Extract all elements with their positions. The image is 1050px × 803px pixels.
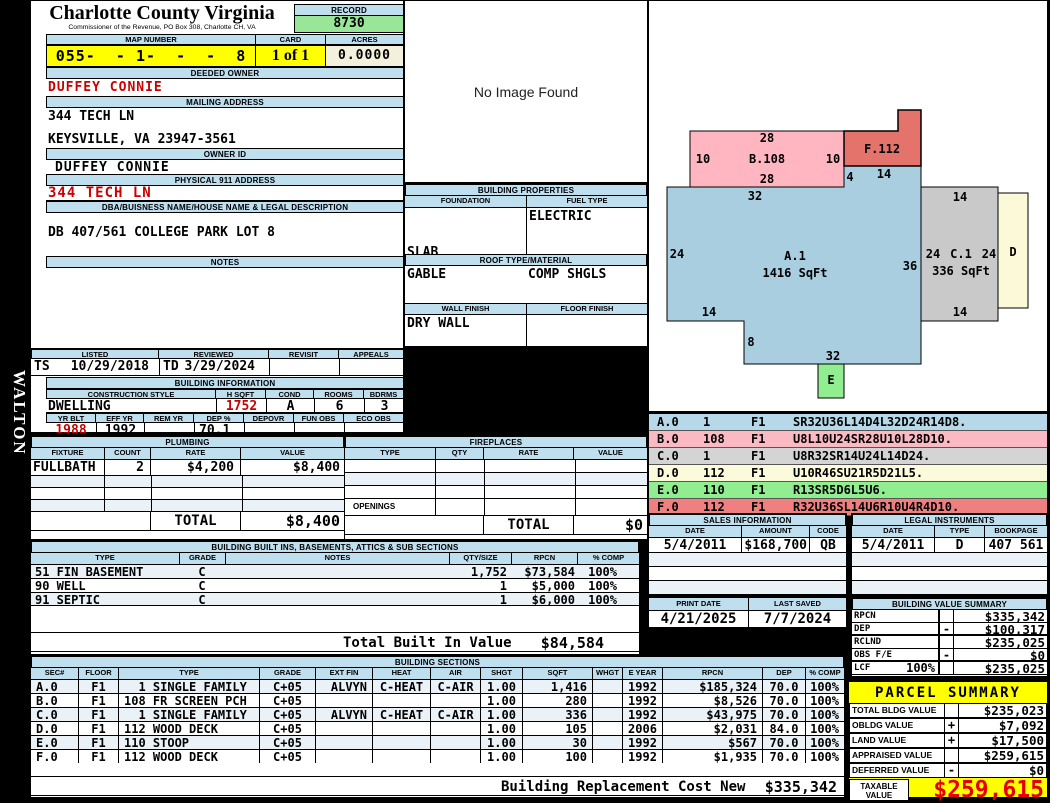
rooms-label: ROOMS <box>314 389 364 399</box>
sketch-b-top-dim: 28 <box>760 131 774 145</box>
cell-shgt: 1.00 <box>480 722 522 735</box>
foundation-label: FOUNDATION <box>405 196 526 207</box>
plumbing-rate: $4,200 <box>150 460 240 475</box>
vector-sec: C.0 <box>649 448 703 464</box>
county-subtitle: Commissioner of the Revenue, PO Box 308,… <box>31 24 293 31</box>
cell-dep: 70.0 <box>762 708 805 721</box>
sqft-col-label: SQFT <box>522 668 592 679</box>
building-information-label: BUILDING INFORMATION <box>46 377 404 389</box>
vector-floor: F1 <box>751 465 793 481</box>
sales-panel: SALES INFORMATION DATE AMOUNT CODE 5/4/2… <box>648 513 847 593</box>
owner-id-label: OWNER ID <box>46 148 404 160</box>
vector-descriptors-panel: A.01F1SR32U36L14D4L32D24R14D8.B.0108F1U8… <box>648 413 1048 513</box>
yrblt-value: 1988 <box>46 423 96 433</box>
hsqft-value: 1752 <box>216 399 266 412</box>
funobs-label: FUN OBS <box>294 413 344 423</box>
vector-row: B.0108F1U8L10U24SR28U10L28D10. <box>649 431 1047 448</box>
cell-dep: 70.0 <box>762 680 805 693</box>
cell-ext <box>315 750 372 763</box>
cell-rpcn: $2,031 <box>662 722 762 735</box>
building-properties-label: BUILDING PROPERTIES <box>405 184 647 196</box>
cell-eyear: 1992 <box>622 750 662 763</box>
acres-value: 0.0000 <box>326 45 404 67</box>
bi-notes-label: NOTES <box>225 553 449 564</box>
parcel-row-label: DEFERRED VALUE <box>849 763 945 778</box>
cell-heat <box>372 736 430 749</box>
section-f-shape <box>844 110 921 166</box>
floor-finish-label: FLOOR FINISH <box>526 303 647 314</box>
fireplace-openings-label: OPENINGS <box>345 499 435 515</box>
cell-floor: F1 <box>78 694 118 707</box>
parcel-summary-title: PARCEL SUMMARY <box>849 682 1047 702</box>
value-summary-row-label: RCLND <box>852 636 881 648</box>
bdrms-label: BDRMS <box>364 389 404 399</box>
section-a-shape <box>667 166 921 364</box>
rate-label: RATE <box>150 448 240 459</box>
fireplaces-total-label: TOTAL <box>483 516 573 534</box>
cell-shgt: 1.00 <box>480 680 522 693</box>
parcel-summary-panel: PARCEL SUMMARY TOTAL BLDG VALUE$235,023O… <box>848 681 1048 798</box>
cell-rpcn: $8,526 <box>662 694 762 707</box>
ecoobs-label: ECO OBS <box>344 413 404 423</box>
plumbing-total-label: TOTAL <box>150 512 240 530</box>
vector-code: 1 <box>703 448 751 464</box>
vector-row: D.0112F1U10R46SU21R5D21L5. <box>649 465 1047 482</box>
cell-shgt: 1.00 <box>480 750 522 763</box>
value-summary-row-op <box>940 610 953 622</box>
vector-row: E.0110F1R13SR5D6L5U6. <box>649 482 1047 499</box>
cell-type: 108 FR SCREEN PCH <box>118 694 259 707</box>
cell-floor: F1 <box>78 736 118 749</box>
cell-heat: C-HEAT <box>372 680 430 693</box>
sale-row: 5/4/2011 $168,700 QB <box>649 537 846 553</box>
building-properties-panel: BUILDING PROPERTIES FOUNDATION FUEL TYPE… <box>404 183 648 347</box>
cell-shgt: 1.00 <box>480 694 522 707</box>
parcel-row-op: + <box>945 718 959 733</box>
parcel-row-op <box>945 748 959 763</box>
fixture-label: FIXTURE <box>31 448 104 459</box>
sketch-drawing <box>649 1 1047 411</box>
vector-sec: E.0 <box>649 482 703 498</box>
county-title: Charlotte County Virginia <box>31 2 293 25</box>
cell-sqft: 336 <box>522 708 592 721</box>
cell-dep: 70.0 <box>762 694 805 707</box>
cell-grade: C+05 <box>259 708 315 721</box>
fireplace-value-label: VALUE <box>573 448 647 459</box>
bi-comp-label: % COMP <box>577 553 639 564</box>
sketch-a-top14-dim: 14 <box>877 167 891 181</box>
value-summary-row-op: - <box>940 649 953 660</box>
sketch-b-left-dim: 10 <box>696 152 710 166</box>
notes-value <box>46 268 404 344</box>
cell-comp: 100% <box>805 722 844 735</box>
depovr-label: DEPOVR <box>244 413 294 423</box>
count-label: COUNT <box>104 448 150 459</box>
sketch-a-bl14-dim: 14 <box>702 305 716 319</box>
bi-qty-label: QTY/SIZE <box>449 553 511 564</box>
parcel-row-label: LAND VALUE <box>849 733 945 748</box>
fireplace-type-label: TYPE <box>345 448 435 459</box>
cell-heat: C-HEAT <box>372 708 430 721</box>
value-summary-row-value: $335,342 <box>953 610 1047 622</box>
sale-code-label: CODE <box>809 526 846 537</box>
cell-air: C-AIR <box>430 708 480 721</box>
dep-pct-label: DEP % <box>194 413 244 423</box>
sketch-b-label: B.108 <box>749 152 785 166</box>
building-section-row: F.0F1112 WOOD DECKC+051.001001992$1,9357… <box>31 749 844 763</box>
sketch-b-bottom-dim: 28 <box>760 172 774 186</box>
vector-path: U8L10U24SR28U10L28D10. <box>793 431 1047 447</box>
sketch-a-sqft: 1416 SqFt <box>762 266 827 280</box>
building-section-row: E.0F1110 STOOPC+051.00301992$56770.0100% <box>31 735 844 749</box>
cell-heat <box>372 722 430 735</box>
built-ins-total-value: $84,584 <box>541 634 604 652</box>
sale-amount-label: AMOUNT <box>741 526 809 537</box>
value-summary-row-pct: 100% <box>906 662 935 674</box>
print-date-label: PRINT DATE <box>649 598 748 610</box>
sketch-c-label: C.1 <box>950 247 972 261</box>
photo-panel: No Image Found <box>404 0 648 183</box>
replacement-cost-value: $335,342 <box>765 778 837 796</box>
cell-grade: C+05 <box>259 694 315 707</box>
cell-type: 1 SINGLE FAMILY <box>118 680 259 693</box>
sketch-c-left-dim: 24 <box>926 247 940 261</box>
dep-col-label: DEP <box>762 668 805 679</box>
deeded-owner-label: DEEDED OWNER <box>46 67 404 79</box>
building-section-row: B.0F1108 FR SCREEN PCHC+051.002801992$8,… <box>31 693 844 707</box>
cell-ext <box>315 694 372 707</box>
whgt-col-label: WHGT <box>592 668 622 679</box>
cell-ext <box>315 736 372 749</box>
construction-style-label: CONSTRUCTION STYLE <box>46 389 216 399</box>
cell-eyear: 2006 <box>622 722 662 735</box>
sketch-c-right-dim: 24 <box>982 247 996 261</box>
cell-sqft: 100 <box>522 750 592 763</box>
eyear-col-label: E YEAR <box>622 668 662 679</box>
parcel-row-label: OBLDG VALUE <box>849 718 945 733</box>
cond-label: COND <box>266 389 314 399</box>
revisit-value <box>269 359 339 375</box>
remyr-label: REM YR <box>144 413 194 423</box>
plumbing-value: $8,400 <box>240 460 344 475</box>
cell-ext <box>315 722 372 735</box>
building-sections-label: BUILDING SECTIONS <box>31 656 844 668</box>
listed-by: TS <box>34 359 50 375</box>
deeded-owner-value: DUFFEY CONNIE <box>48 80 404 96</box>
vector-row: C.01F1U8R32SR14U24L14D24. <box>649 448 1047 465</box>
parcel-summary-row: DEFERRED VALUE-$0 <box>849 763 1047 778</box>
funobs-value <box>294 423 344 433</box>
cell-sqft: 105 <box>522 722 592 735</box>
parcel-row-op <box>945 703 959 718</box>
legal-description-label: DBA/BUISNESS NAME/HOUSE NAME & LEGAL DES… <box>46 201 404 213</box>
sketch-a-right36-dim: 36 <box>903 259 917 273</box>
cell-air <box>430 736 480 749</box>
sketch-c-sqft: 336 SqFt <box>932 264 990 278</box>
vector-code: 112 <box>703 465 751 481</box>
sketch-a-top32-dim: 32 <box>748 189 762 203</box>
cell-rpcn: $43,975 <box>662 708 762 721</box>
building-section-row: C.0F1 1 SINGLE FAMILYC+05ALVYNC-HEATC-AI… <box>31 707 844 721</box>
print-info-panel: PRINT DATE LAST SAVED 4/21/2025 7/7/2024 <box>648 597 847 628</box>
cell-sec: C.0 <box>31 708 78 721</box>
value-summary-row-value: $100,317 <box>953 623 1047 634</box>
cond-value: A <box>266 399 314 412</box>
owner-panel: Charlotte County Virginia Commissioner o… <box>30 0 404 433</box>
cell-air <box>430 694 480 707</box>
sketch-b-right-dim: 10 <box>826 152 840 166</box>
cell-shgt: 1.00 <box>480 736 522 749</box>
vector-floor: F1 <box>751 431 793 447</box>
floor-col-label: FLOOR <box>78 668 118 679</box>
type-col-label: TYPE <box>118 668 259 679</box>
cell-ext: ALVYN <box>315 680 372 693</box>
cell-heat <box>372 694 430 707</box>
sketch-c-bottom-dim: 14 <box>953 305 967 319</box>
fireplaces-label: FIREPLACES <box>345 436 647 448</box>
acres-label: ACRES <box>326 34 404 45</box>
bi-type-label: TYPE <box>31 553 179 564</box>
cell-eyear: 1992 <box>622 708 662 721</box>
listed-label: LISTED <box>31 349 159 359</box>
fireplace-rate-label: RATE <box>483 448 573 459</box>
vector-path: R13SR5D6L5U6. <box>793 482 1047 498</box>
cell-whgt <box>592 736 622 749</box>
sidebar-vertical-label: WALTON <box>3 343 29 483</box>
appeals-value <box>339 359 404 375</box>
card-value: 1 of 1 <box>256 45 326 67</box>
cell-sec: D.0 <box>31 722 78 735</box>
parcel-summary-row: APPRAISED VALUE$259,615 <box>849 748 1047 763</box>
revisit-label: REVISIT <box>269 349 339 359</box>
building-section-row: D.0F1112 WOOD DECKC+051.001052006$2,0318… <box>31 721 844 735</box>
value-summary-row-label: LCF <box>852 662 870 674</box>
last-saved-label: LAST SAVED <box>748 598 846 610</box>
property-record-card: { "sidebar": { "vertical_text": "WALTON"… <box>0 0 1050 800</box>
parcel-row-value: $17,500 <box>959 733 1047 748</box>
reviewed-by: TD <box>163 359 179 375</box>
replacement-cost-label: Building Replacement Cost New <box>501 779 745 796</box>
legal-date-label: DATE <box>852 526 934 537</box>
sketch-a-label: A.1 <box>784 249 806 263</box>
appeals-label: APPEALS <box>339 349 404 359</box>
roof-type-label: ROOF TYPE/MATERIAL <box>405 254 647 266</box>
cell-sec: E.0 <box>31 736 78 749</box>
print-date-value: 4/21/2025 <box>649 611 748 627</box>
notes-label: NOTES <box>46 256 404 268</box>
parcel-row-op: - <box>945 763 959 778</box>
cell-air <box>430 750 480 763</box>
wall-finish-label: WALL FINISH <box>405 303 526 314</box>
value-summary-row-op <box>940 636 953 648</box>
cell-grade: C+05 <box>259 722 315 735</box>
mailing-address-line2: KEYSVILLE, VA 23947-3561 <box>48 132 404 148</box>
cell-eyear: 1992 <box>622 736 662 749</box>
cell-dep: 84.0 <box>762 722 805 735</box>
cell-type: 112 WOOD DECK <box>118 750 259 763</box>
effyr-value: 1992 <box>96 423 144 433</box>
cell-comp: 100% <box>805 680 844 693</box>
effyr-label: EFF YR <box>96 413 144 423</box>
rooms-value: 6 <box>314 399 364 412</box>
foundation-value: SLAB BRICK & BLOCK <box>405 208 526 254</box>
sketch-f-label: F.112 <box>864 142 900 156</box>
ecoobs-value <box>344 423 404 433</box>
vector-sec: A.0 <box>649 414 703 430</box>
record-value: 8730 <box>294 15 404 33</box>
mailing-address-line1: 344 TECH LN <box>48 109 404 125</box>
vector-floor: F1 <box>751 414 793 430</box>
sketch-a-bottom32-dim: 32 <box>826 349 840 363</box>
cell-type: 112 WOOD DECK <box>118 722 259 735</box>
value-summary-row: LCF100%$235,025 <box>852 662 1047 675</box>
cell-whgt <box>592 750 622 763</box>
reviewed-date: 3/29/2024 <box>185 359 255 375</box>
vector-path: U8R32SR14U24L14D24. <box>793 448 1047 464</box>
cell-rpcn: $185,324 <box>662 680 762 693</box>
cell-whgt <box>592 708 622 721</box>
taxable-value-label: TAXABLEVALUE <box>849 779 909 801</box>
cell-whgt <box>592 680 622 693</box>
vector-path: SR32U36L14D4L32D24R14D8. <box>793 414 1047 430</box>
physical-address-value: 344 TECH LN <box>46 185 404 201</box>
value-summary-row-op <box>940 662 953 674</box>
card-label: CARD <box>256 34 326 45</box>
cell-sqft: 280 <box>522 694 592 707</box>
cell-type: 110 STOOP <box>118 736 259 749</box>
value-summary-row-label: RPCN <box>852 610 876 622</box>
map-number-label: MAP NUMBER <box>46 34 256 45</box>
sketch-d-label: D <box>1009 245 1016 259</box>
cell-comp: 100% <box>805 708 844 721</box>
cell-whgt <box>592 694 622 707</box>
fireplace-qty-label: QTY <box>435 448 483 459</box>
vector-sec: D.0 <box>649 465 703 481</box>
plumbing-total-value: $8,400 <box>240 512 344 530</box>
cell-grade: C+05 <box>259 680 315 693</box>
cell-sec: B.0 <box>31 694 78 707</box>
vector-row: A.01F1SR32U36L14D4L32D24R14D8. <box>649 414 1047 431</box>
vector-code: 108 <box>703 431 751 447</box>
built-ins-row: 51 FIN BASEMENT C 1,752 $73,584 100% <box>31 564 639 578</box>
fuel-type-value: ELECTRIC <box>526 208 647 254</box>
construction-style-value: DWELLING <box>46 399 216 412</box>
listed-date: 10/29/2018 <box>71 359 149 375</box>
legal-description-value: DB 407/561 COLLEGE PARK LOT 8 <box>48 225 404 241</box>
sales-label: SALES INFORMATION <box>649 514 846 526</box>
parcel-row-value: $7,092 <box>959 718 1047 733</box>
vector-code: 110 <box>703 482 751 498</box>
cell-comp: 100% <box>805 736 844 749</box>
cell-heat <box>372 750 430 763</box>
cell-eyear: 1992 <box>622 694 662 707</box>
cell-rpcn: $1,935 <box>662 750 762 763</box>
cell-whgt <box>592 722 622 735</box>
parcel-summary-row: OBLDG VALUE+$7,092 <box>849 718 1047 733</box>
bdrms-value: 3 <box>364 399 404 412</box>
plumbing-panel: PLUMBING FIXTURE COUNT RATE VALUE FULLBA… <box>30 435 345 540</box>
sketch-a-seg4-dim: 4 <box>846 170 853 184</box>
mailing-address-label: MAILING ADDRESS <box>46 96 404 108</box>
cell-sqft: 30 <box>522 736 592 749</box>
built-ins-label: BUILDING BUILT INS, BASEMENTS, ATTICS & … <box>31 541 639 553</box>
building-sections-panel: BUILDING SECTIONS SEC# FLOOR TYPE GRADE … <box>30 655 845 798</box>
parcel-row-value: $259,615 <box>959 748 1047 763</box>
sketch-c-top-dim: 14 <box>953 190 967 204</box>
parcel-row-op: + <box>945 733 959 748</box>
floor-finish-value: CARPET VINYL <box>526 315 647 358</box>
reviewed-value: TD3/29/2024 <box>159 359 269 375</box>
comp-col-label: % COMP <box>805 668 844 679</box>
cell-air: C-AIR <box>430 680 480 693</box>
yrblt-label: YR BLT <box>46 413 96 423</box>
legal-type-label: TYPE <box>934 526 984 537</box>
plumbing-fixture: FULLBATH <box>31 460 104 475</box>
cell-air <box>430 722 480 735</box>
vector-path: U10R46SU21R5D21L5. <box>793 465 1047 481</box>
vector-code: 1 <box>703 414 751 430</box>
bi-grade-label: GRADE <box>179 553 225 564</box>
sketch-panel: 28 10 B.108 10 28 F.112 4 14 32 24 A.1 1… <box>648 0 1048 412</box>
cell-floor: F1 <box>78 750 118 763</box>
rpcn-col-label: RPCN <box>662 668 762 679</box>
cell-grade: C+05 <box>259 736 315 749</box>
cell-eyear: 1992 <box>622 680 662 693</box>
extfin-col-label: EXT FIN <box>315 668 372 679</box>
built-ins-row: 90 WELL C 1 $5,000 100% <box>31 578 639 592</box>
cell-comp: 100% <box>805 694 844 707</box>
cell-rpcn: $567 <box>662 736 762 749</box>
cell-type: 1 SINGLE FAMILY <box>118 708 259 721</box>
hsqft-label: H SQFT <box>216 389 266 399</box>
cell-dep: 70.0 <box>762 736 805 749</box>
no-image-message: No Image Found <box>474 84 578 100</box>
cell-grade: C+05 <box>259 750 315 763</box>
vector-floor: F1 <box>751 482 793 498</box>
vector-floor: F1 <box>751 448 793 464</box>
depovr-value <box>244 423 294 433</box>
parcel-summary-row: LAND VALUE+$17,500 <box>849 733 1047 748</box>
plumbing-label: PLUMBING <box>31 436 344 448</box>
sale-date-label: DATE <box>649 526 741 537</box>
built-ins-panel: BUILDING BUILT INS, BASEMENTS, ATTICS & … <box>30 540 640 655</box>
air-col-label: AIR <box>430 668 480 679</box>
fuel-type-label: FUEL TYPE <box>526 196 647 207</box>
cell-sec: F.0 <box>31 750 78 763</box>
reviewed-label: REVIEWED <box>159 349 269 359</box>
value-summary-panel: BUILDING VALUE SUMMARY RPCN$335,342DEP-$… <box>851 597 1048 677</box>
shgt-col-label: SHGT <box>480 668 522 679</box>
sec-col-label: SEC# <box>31 668 78 679</box>
legal-panel: LEGAL INSTRUMENTS DATE TYPE BOOKPAGE 5/4… <box>851 513 1048 593</box>
legal-book-label: BOOKPAGE <box>984 526 1047 537</box>
value-summary-row-value: $0 <box>953 649 1047 660</box>
map-number-value: 055- - 1- - - 8 <box>46 45 256 67</box>
value-summary-row-value: $235,025 <box>953 662 1047 674</box>
value-label: VALUE <box>240 448 344 459</box>
value-summary-row-value: $235,025 <box>953 636 1047 648</box>
cell-dep: 70.0 <box>762 750 805 763</box>
parcel-row-value: $235,023 <box>959 703 1047 718</box>
plumbing-count: 2 <box>104 460 150 475</box>
listed-value: TS10/29/2018 <box>31 359 159 375</box>
parcel-row-label: APPRAISED VALUE <box>849 748 945 763</box>
wall-finish-value: DRY WALL <box>405 315 526 358</box>
dep-pct-value: 70.1 <box>194 423 244 433</box>
sketch-e-label: E <box>827 373 834 387</box>
parcel-row-label: TOTAL BLDG VALUE <box>849 703 945 718</box>
grade-col-label: GRADE <box>259 668 315 679</box>
